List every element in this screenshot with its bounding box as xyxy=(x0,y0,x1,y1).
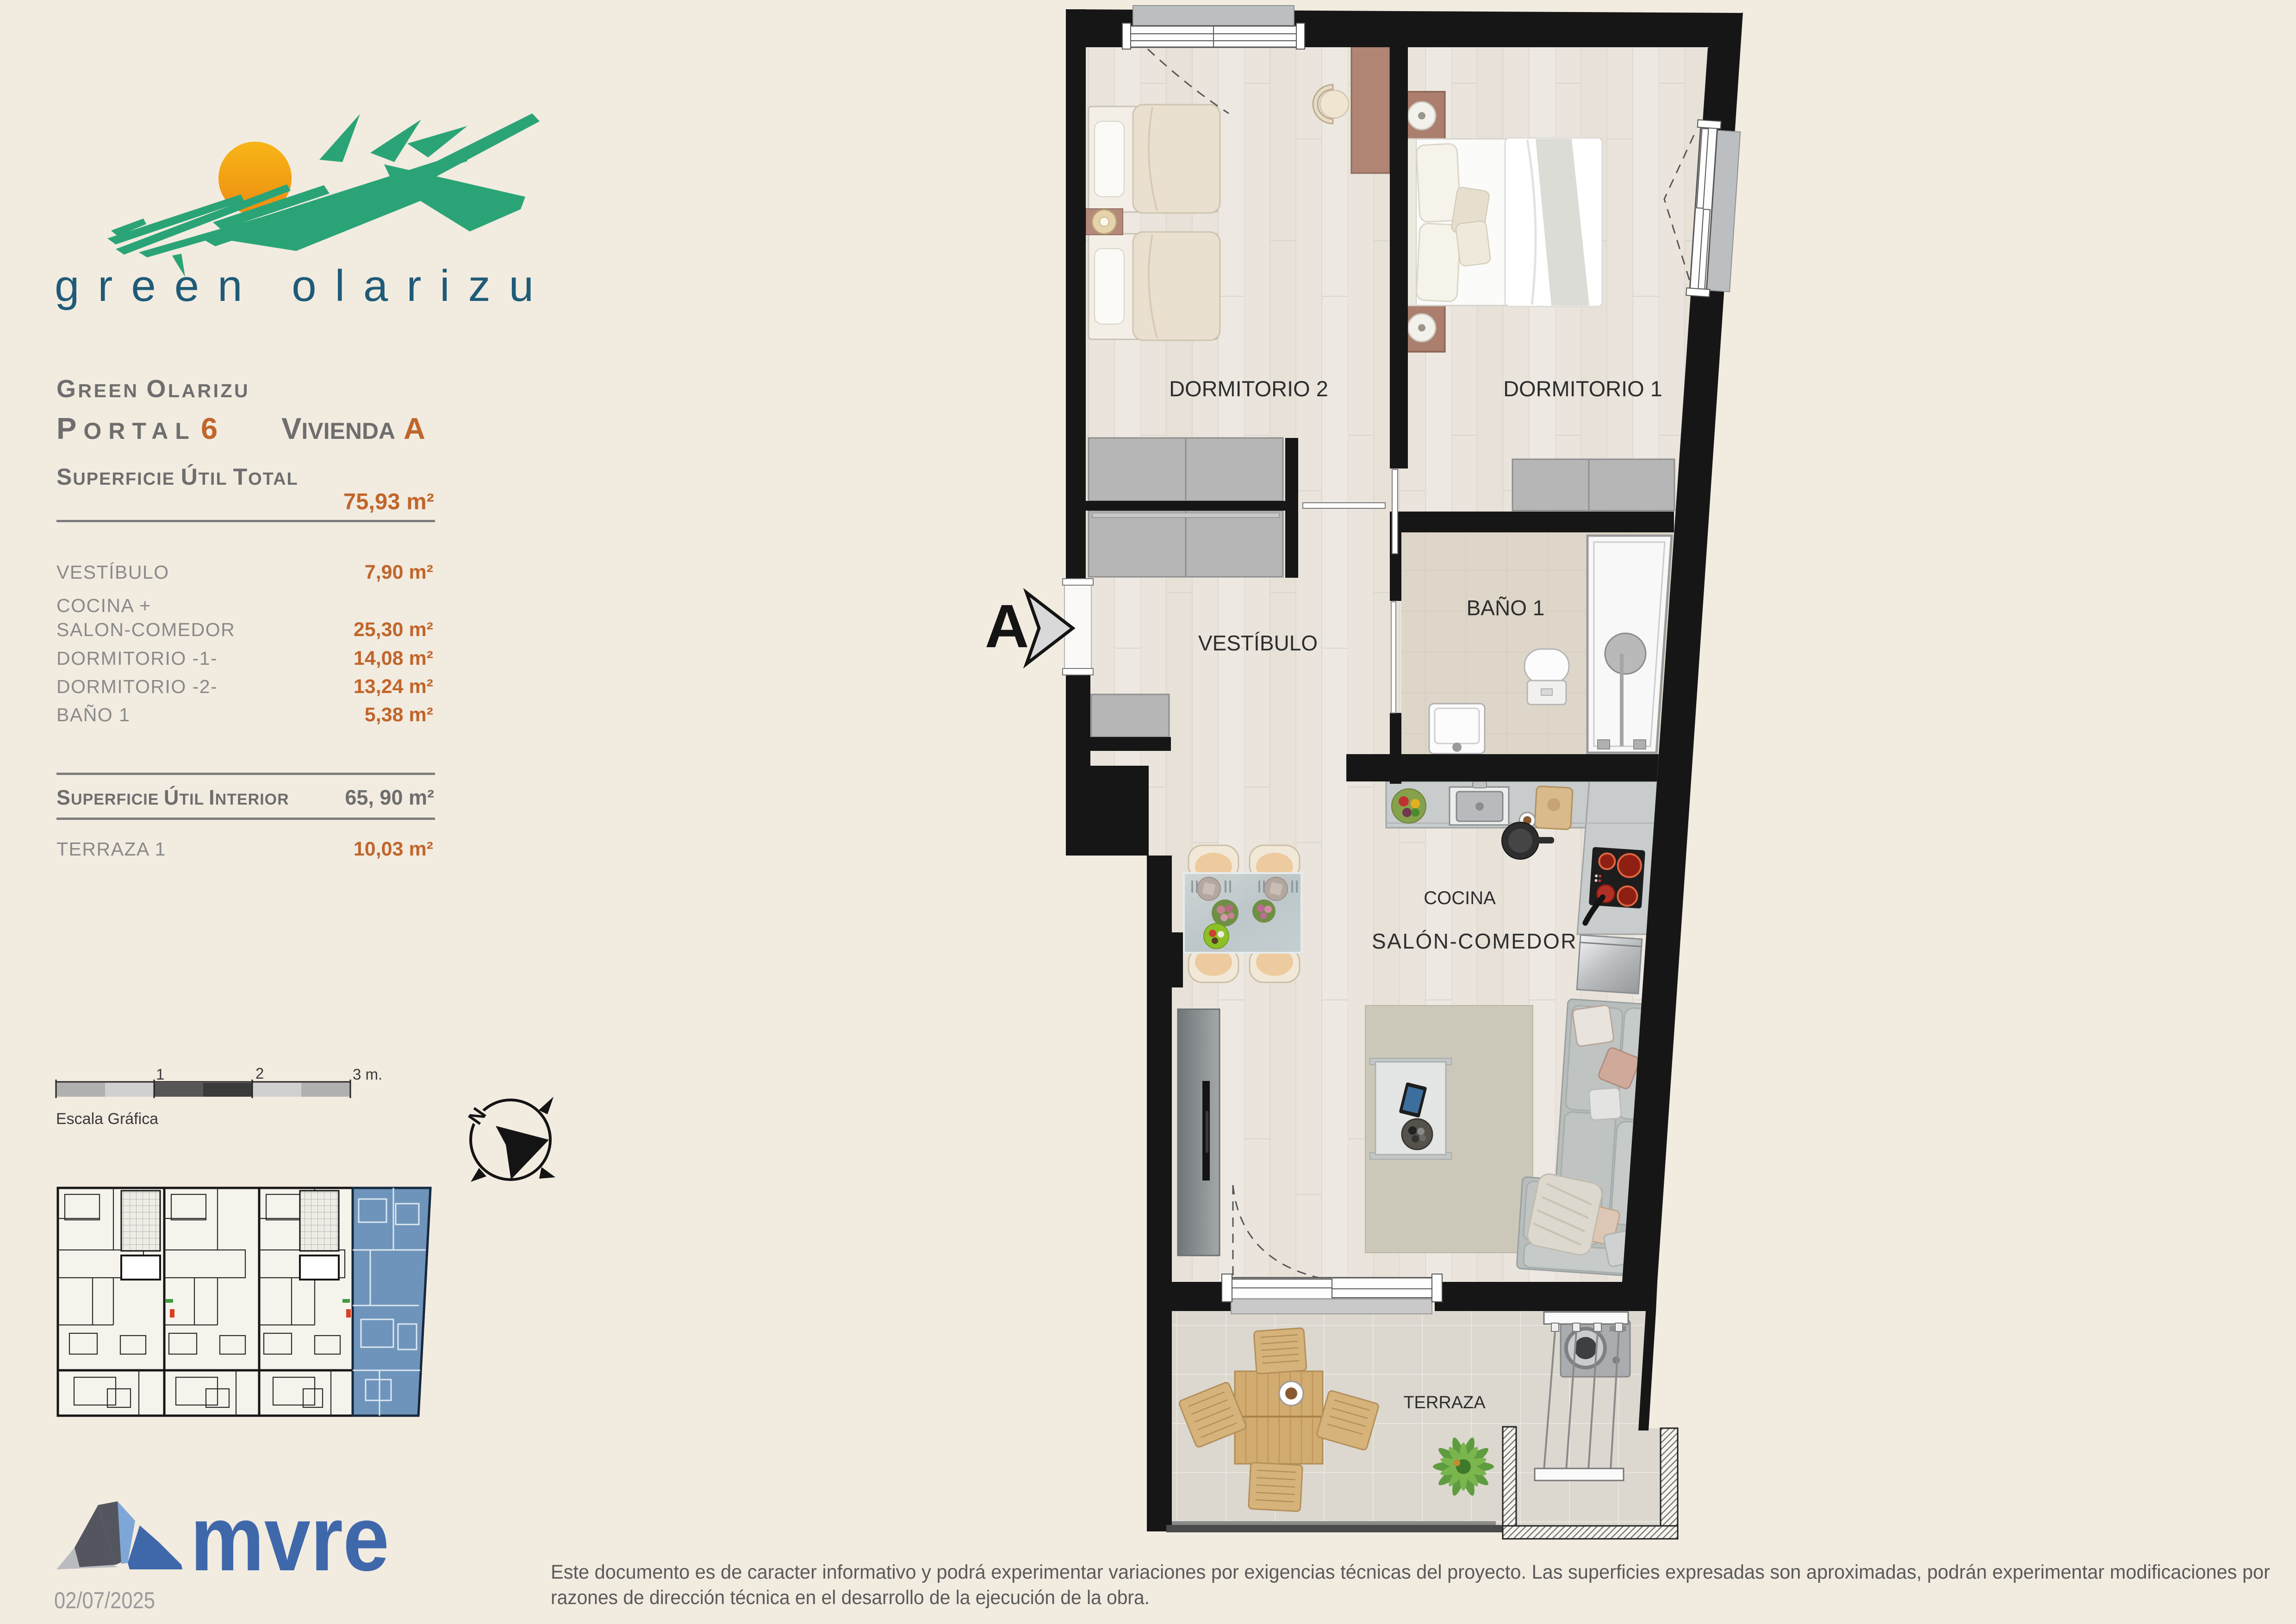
svg-text:25,30 m²: 25,30 m² xyxy=(354,618,433,641)
svg-text:5,38 m²: 5,38 m² xyxy=(365,704,433,726)
svg-text:Escala Gráfica: Escala Gráfica xyxy=(56,1110,158,1128)
svg-text:BAÑO 1: BAÑO 1 xyxy=(1467,596,1545,620)
svg-text:75,93 m²: 75,93 m² xyxy=(343,489,434,514)
svg-text:green olarizu: green olarizu xyxy=(55,261,552,311)
svg-text:COCINA: COCINA xyxy=(1424,888,1496,908)
svg-text:DORMITORIO 1: DORMITORIO 1 xyxy=(1503,376,1662,401)
svg-text:VESTÍBULO: VESTÍBULO xyxy=(56,562,169,583)
svg-text:Este documento es de caracter: Este documento es de caracter informativ… xyxy=(551,1561,2270,1583)
svg-text:COCINA +: COCINA + xyxy=(56,595,151,616)
svg-text:VESTÍBULO: VESTÍBULO xyxy=(1198,631,1318,655)
svg-text:65, 90 m²: 65, 90 m² xyxy=(345,786,434,809)
svg-text:BAÑO 1: BAÑO 1 xyxy=(56,704,130,725)
svg-text:razones de dirección técnica e: razones de dirección técnica en el desar… xyxy=(551,1587,1150,1609)
svg-text:3 m.: 3 m. xyxy=(353,1066,382,1083)
svg-text:6: 6 xyxy=(201,412,218,445)
svg-text:TERRAZA: TERRAZA xyxy=(1403,1393,1486,1412)
svg-text:14,08 m²: 14,08 m² xyxy=(354,647,433,669)
svg-text:7,90 m²: 7,90 m² xyxy=(365,561,433,583)
svg-text:mvre: mvre xyxy=(190,1487,389,1590)
svg-text:DORMITORIO 2: DORMITORIO 2 xyxy=(1169,376,1328,401)
svg-text:SALÓN-COMEDOR: SALÓN-COMEDOR xyxy=(1372,929,1577,953)
svg-text:A: A xyxy=(404,412,425,445)
svg-text:2: 2 xyxy=(255,1065,264,1082)
svg-text:DORMITORIO -2-: DORMITORIO -2- xyxy=(56,676,218,697)
svg-text:DORMITORIO -1-: DORMITORIO -1- xyxy=(56,648,218,669)
svg-text:A: A xyxy=(985,592,1029,660)
svg-text:02/07/2025: 02/07/2025 xyxy=(54,1587,155,1613)
svg-text:1: 1 xyxy=(156,1066,164,1083)
svg-text:SALON-COMEDOR: SALON-COMEDOR xyxy=(56,619,235,640)
svg-text:10,03 m²: 10,03 m² xyxy=(354,838,433,860)
svg-text:13,24 m²: 13,24 m² xyxy=(354,675,433,698)
svg-text:TERRAZA 1: TERRAZA 1 xyxy=(56,838,166,860)
